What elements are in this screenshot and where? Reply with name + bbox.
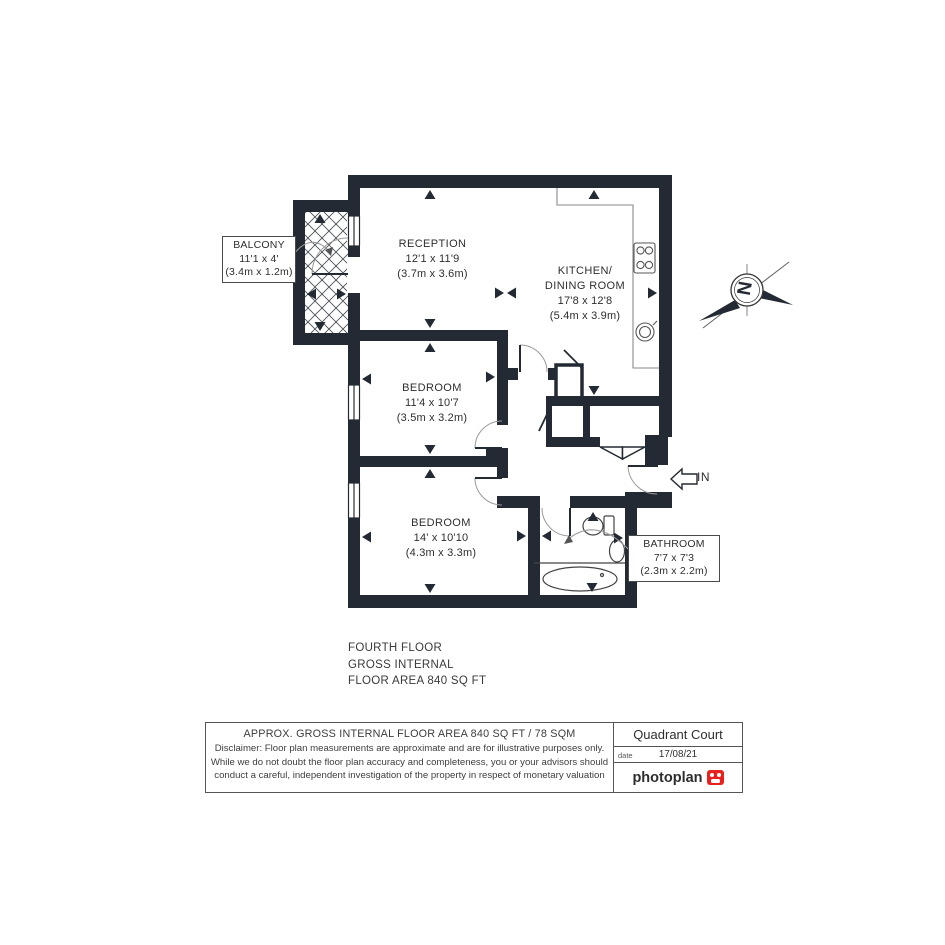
date-value: 17/08/21: [614, 747, 742, 762]
bedroom1-label: BEDROOM 11'4 x 10'7 (3.5m x 3.2m): [372, 381, 492, 426]
room-dims-imperial: 17'8 x 12'8: [525, 294, 645, 309]
room-name: BEDROOM: [372, 381, 492, 396]
wall-hall-left: [497, 455, 508, 478]
room-dims-metric: (3.5m x 3.2m): [372, 411, 492, 426]
floor-summary-line: FOURTH FLOOR: [348, 640, 486, 657]
wall-bedrooms: [348, 456, 497, 467]
hall-door-arc: [520, 345, 547, 372]
footer-disclaimer-section: APPROX. GROSS INTERNAL FLOOR AREA 840 SQ…: [206, 723, 613, 792]
bath-icon: [543, 567, 617, 591]
window-bedroom1: [347, 385, 361, 420]
entrance-door-arc: [628, 466, 657, 494]
window-bedroom2: [347, 483, 361, 518]
room-dims-metric: (3.4m x 1.2m): [224, 266, 294, 280]
sink-icon: [636, 323, 654, 341]
footer-area-title: APPROX. GROSS INTERNAL FLOOR AREA 840 SQ…: [206, 726, 613, 742]
room-dims-imperial: 12'1 x 11'9: [370, 252, 495, 267]
brand-camera-icon: [707, 770, 724, 785]
wall-bedroom2-top-right: [497, 496, 540, 508]
bifold-doors: [600, 447, 645, 459]
balcony-label-box: BALCONY 11'1 x 4' (3.4m x 1.2m): [222, 236, 296, 283]
disclaimer-line: conduct a careful, independent investiga…: [206, 769, 613, 783]
room-name: DINING ROOM: [525, 279, 645, 294]
wall-closet-left: [546, 396, 552, 447]
wall-closet-divider: [583, 406, 590, 437]
room-dims-metric: (2.3m x 2.2m): [630, 565, 718, 579]
room-dims-imperial: 7'7 x 7'3: [630, 552, 718, 566]
date-label: date: [618, 751, 633, 760]
room-name: BEDROOM: [381, 516, 501, 531]
balcony-door-opening: [347, 257, 361, 293]
bathroom-label-box: BATHROOM 7'7 x 7'3 (2.3m x 2.2m): [628, 535, 720, 582]
small-closet: [556, 365, 582, 398]
property-name: Quadrant Court: [614, 723, 742, 747]
footer-property-section: Quadrant Court date 17/08/21 photoplan: [613, 723, 742, 792]
wall-bathroom-left: [528, 508, 540, 607]
room-dims-imperial: 11'4 x 10'7: [372, 396, 492, 411]
room-name: BATHROOM: [630, 538, 718, 552]
brand-name: photoplan: [632, 770, 702, 786]
wall-reception-bottom: [348, 330, 508, 341]
room-dims-imperial: 11'1 x 4': [224, 253, 294, 267]
floor-summary-line: FLOOR AREA 840 SQ FT: [348, 673, 486, 690]
wall-bedroom1-right: [497, 330, 508, 425]
footer-bar: APPROX. GROSS INTERNAL FLOOR AREA 840 SQ…: [205, 722, 743, 793]
room-name: BALCONY: [224, 239, 294, 253]
room-name: KITCHEN/: [525, 264, 645, 279]
entrance-label: IN: [697, 470, 710, 484]
room-name: RECEPTION: [370, 237, 495, 252]
brand-logo: photoplan: [614, 763, 742, 792]
floor-summary: FOURTH FLOOR GROSS INTERNAL FLOOR AREA 8…: [348, 640, 486, 690]
balcony-hatch: [305, 212, 348, 333]
wall-right: [659, 175, 672, 437]
entrance-arrow-icon: [671, 469, 697, 489]
bathroom-fixtures: [534, 516, 625, 591]
reception-label: RECEPTION 12'1 x 11'9 (3.7m x 3.6m): [370, 237, 495, 282]
floorplan-svg: [0, 0, 945, 945]
room-dims-imperial: 14' x 10'10: [381, 531, 501, 546]
floor-summary-line: GROSS INTERNAL: [348, 657, 486, 674]
window-balcony: [347, 216, 361, 246]
wall-top: [348, 175, 672, 188]
wall-closet-bottom: [546, 437, 600, 447]
wall-bottom: [348, 595, 637, 608]
room-dims-metric: (3.7m x 3.6m): [370, 267, 495, 282]
wall-bathroom-top: [570, 496, 625, 508]
disclaimer-line: Disclaimer: Floor plan measurements are …: [206, 742, 613, 756]
balcony-wall-top: [293, 200, 348, 212]
bathroom-door-arc: [542, 508, 570, 536]
bedroom2-label: BEDROOM 14' x 10'10 (4.3m x 3.3m): [381, 516, 501, 561]
date-row: date 17/08/21: [614, 747, 742, 763]
room-dims-metric: (4.3m x 3.3m): [381, 546, 501, 561]
floorplan-page: { "plan": { "rooms": { "reception": {"na…: [0, 0, 945, 945]
entrance-pier: [645, 435, 668, 465]
room-dims-metric: (5.4m x 3.9m): [525, 309, 645, 324]
wall-jamb1: [508, 368, 518, 380]
kitchen-label: KITCHEN/ DINING ROOM 17'8 x 12'8 (5.4m x…: [525, 264, 645, 324]
disclaimer-line: While we do not doubt the floor plan acc…: [206, 756, 613, 770]
